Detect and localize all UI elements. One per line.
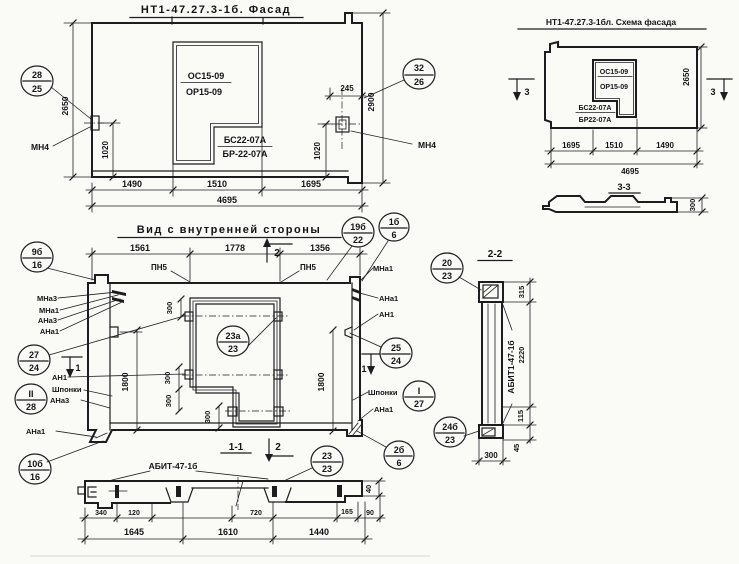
dim-label: 1610 xyxy=(218,527,238,537)
svg-text:23: 23 xyxy=(228,344,238,354)
svg-text:28: 28 xyxy=(32,70,42,80)
mark-label: АНа3 xyxy=(38,316,57,325)
section-1-1: 1-1 2 АБИТ-47-1б 23 23 xyxy=(78,439,385,544)
mark-label: АНа1 xyxy=(374,405,393,414)
block-mark: БР22-07А xyxy=(579,117,612,124)
svg-text:6: 6 xyxy=(391,230,396,240)
pn5-label-left: ПН5 xyxy=(151,263,168,272)
mark-label: АНа3 xyxy=(50,396,69,405)
svg-text:22: 22 xyxy=(353,235,363,245)
mark-label: МНа1 xyxy=(373,264,393,273)
callout-I-27: I 27 xyxy=(403,381,435,411)
dim-label: 1800 xyxy=(316,372,326,391)
facade-title: НТ1-47.27.3-1б. Фасад xyxy=(141,4,291,16)
inner-view-title: Вид с внутренней стороны xyxy=(137,224,322,236)
callout-28-25: 28 25 xyxy=(21,66,91,119)
svg-text:1: 1 xyxy=(361,364,366,374)
section-2-2: 2-2 20 23 АБИТ1-47-1б 315 2220 xyxy=(431,249,536,465)
anchor-detail-right xyxy=(336,117,349,132)
scheme-view: НТ1-47.27.3-1бл. Схема фасада ОС15-09 ОР… xyxy=(509,17,732,176)
mark-label: АНа1 xyxy=(40,327,59,336)
svg-text:2: 2 xyxy=(275,442,281,453)
dim-label: 1490 xyxy=(656,141,674,150)
callout-32-26: 32 26 xyxy=(364,59,435,98)
dim-label: 115 xyxy=(516,410,525,422)
anchor-label-right: МН4 xyxy=(418,140,436,150)
dim-label: 315 xyxy=(517,286,526,299)
dim-label: 1490 xyxy=(122,179,142,189)
dim-label: 1695 xyxy=(301,179,321,189)
dim-label: 300 xyxy=(163,372,172,385)
callout-II-28: II 28 xyxy=(15,384,47,414)
blueprint-sheet: НТ1-47.27.3-1б. Фасад ОС15-09 ОР15-09 БС… xyxy=(0,0,739,564)
svg-text:27: 27 xyxy=(29,350,39,360)
dim-label: 40 xyxy=(364,485,373,493)
dim-label: 300 xyxy=(164,395,173,408)
dim-label: 1778 xyxy=(225,243,245,253)
svg-text:23: 23 xyxy=(445,435,455,445)
dim-label: 2650 xyxy=(682,68,691,86)
svg-text:27: 27 xyxy=(414,399,424,409)
svg-text:16: 16 xyxy=(30,472,40,482)
callout-23a-23: 23а 23 xyxy=(217,318,276,356)
pn5-label-right: ПН5 xyxy=(300,263,317,272)
svg-text:25: 25 xyxy=(32,84,42,94)
block-mark: БР-22-07А xyxy=(223,149,268,159)
section-3-mark-left: 3 xyxy=(509,79,534,101)
section-2-2-title: 2-2 xyxy=(488,249,503,260)
section-2-mark-top: 2 xyxy=(263,238,292,262)
callout-23-23: 23 23 xyxy=(286,446,343,480)
mark-label: АН1 xyxy=(379,310,394,319)
svg-text:24: 24 xyxy=(29,363,39,373)
dim-label: 1356 xyxy=(310,243,330,253)
dim-label: 4695 xyxy=(621,167,639,176)
section-1-1-title: 1-1 xyxy=(229,442,244,453)
svg-text:6: 6 xyxy=(396,458,401,468)
panel-mark-label: АБИТ1-47-1б xyxy=(506,340,516,393)
svg-text:16: 16 xyxy=(32,260,42,270)
mark-label: МНа3 xyxy=(37,294,57,303)
svg-text:26: 26 xyxy=(414,77,424,87)
dim-label: 165 xyxy=(341,509,353,516)
dim-label: 4695 xyxy=(217,195,237,205)
svg-text:28: 28 xyxy=(26,402,36,412)
dim-label: 90 xyxy=(366,510,374,517)
window-mark: ОР15-09 xyxy=(600,84,628,91)
svg-text:2: 2 xyxy=(274,248,280,259)
section-1-mark-right: 1 xyxy=(361,354,380,375)
anchor-label-left: МН4 xyxy=(31,142,49,152)
callout-10b-16: 10б 16 xyxy=(19,441,103,484)
facade-view: НТ1-47.27.3-1б. Фасад ОС15-09 ОР15-09 БС… xyxy=(21,4,436,212)
svg-text:32: 32 xyxy=(414,63,424,73)
inner-window-opening xyxy=(190,298,280,427)
dim-label: 2650 xyxy=(60,96,70,115)
svg-text:24: 24 xyxy=(391,356,401,366)
dim-label: 720 xyxy=(250,510,262,517)
svg-text:3: 3 xyxy=(524,87,529,97)
dim-label: 1020 xyxy=(101,141,110,159)
svg-text:2б: 2б xyxy=(394,445,405,455)
svg-text:20: 20 xyxy=(442,258,452,268)
dim-label: 245 xyxy=(340,84,354,93)
dim-label: 300 xyxy=(484,451,498,460)
callout-2b-6: 2б 6 xyxy=(357,431,414,469)
svg-text:23: 23 xyxy=(442,271,452,281)
section-3-3-title: 3-3 xyxy=(617,182,630,192)
svg-text:23: 23 xyxy=(322,451,332,461)
svg-text:9б: 9б xyxy=(32,247,43,257)
dim-label: 120 xyxy=(128,510,140,517)
svg-text:10б: 10б xyxy=(27,459,43,469)
panel-mark-label: АБИТ-47-1б xyxy=(149,461,198,471)
svg-text:3: 3 xyxy=(710,87,715,97)
callout-24b-23: 24б 23 xyxy=(434,417,479,447)
svg-text:1б: 1б xyxy=(389,217,400,227)
svg-text:I: I xyxy=(418,386,421,396)
inner-panel-outline xyxy=(88,275,362,442)
window-mark: ОС15-09 xyxy=(188,71,225,81)
section-3-mark-right: 3 xyxy=(707,79,732,101)
callout-20-23: 20 23 xyxy=(431,253,481,290)
svg-text:25: 25 xyxy=(391,343,401,353)
dim-label: 1695 xyxy=(562,141,580,150)
mark-label: МНа1 xyxy=(39,306,59,315)
block-mark: БС22-07А xyxy=(579,105,612,112)
svg-text:24б: 24б xyxy=(442,422,458,432)
inner-view: Вид с внутренней стороны 23а 23 xyxy=(15,213,435,484)
svg-text:19б: 19б xyxy=(350,222,366,232)
window-mark: ОР15-09 xyxy=(186,87,222,97)
window-mark: ОС15-09 xyxy=(600,69,629,76)
dim-label: 300 xyxy=(203,411,212,424)
shponki-label-left: Шпонки xyxy=(52,385,82,394)
dim-label: 1020 xyxy=(313,142,322,160)
callout-19b-22: 19б 22 xyxy=(327,217,374,280)
callout-9b-16: 9б 16 xyxy=(21,242,95,280)
dim-label: 2220 xyxy=(517,347,526,364)
dim-label: 1510 xyxy=(605,141,623,150)
mark-label: АНа1 xyxy=(26,427,45,436)
shponki-label-right: Шпонки xyxy=(368,388,398,397)
dim-label: 300 xyxy=(165,302,174,315)
svg-text:23: 23 xyxy=(322,464,332,474)
svg-text:23а: 23а xyxy=(225,331,241,341)
dim-label: 340 xyxy=(95,510,107,517)
dim-label: 300 xyxy=(688,199,697,212)
svg-text:1: 1 xyxy=(75,363,80,373)
block-mark: БС22-07А xyxy=(224,135,267,145)
mark-label: АНа1 xyxy=(379,294,398,303)
dim-label: 45 xyxy=(512,444,521,452)
dim-label: 1440 xyxy=(309,527,329,537)
dim-label: 1510 xyxy=(207,179,227,189)
section-3-3-profile xyxy=(543,196,677,212)
mark-label: АН1 xyxy=(52,373,67,382)
dim-label: 1645 xyxy=(124,527,144,537)
svg-text:II: II xyxy=(28,389,33,399)
scheme-title: НТ1-47.27.3-1бл. Схема фасада xyxy=(546,17,677,27)
section-3-3: 3-3 300 xyxy=(543,182,708,215)
section-2-mark-bottom: 2 xyxy=(265,439,293,462)
dim-label: 1561 xyxy=(130,243,150,253)
facade-window-opening xyxy=(173,42,262,164)
